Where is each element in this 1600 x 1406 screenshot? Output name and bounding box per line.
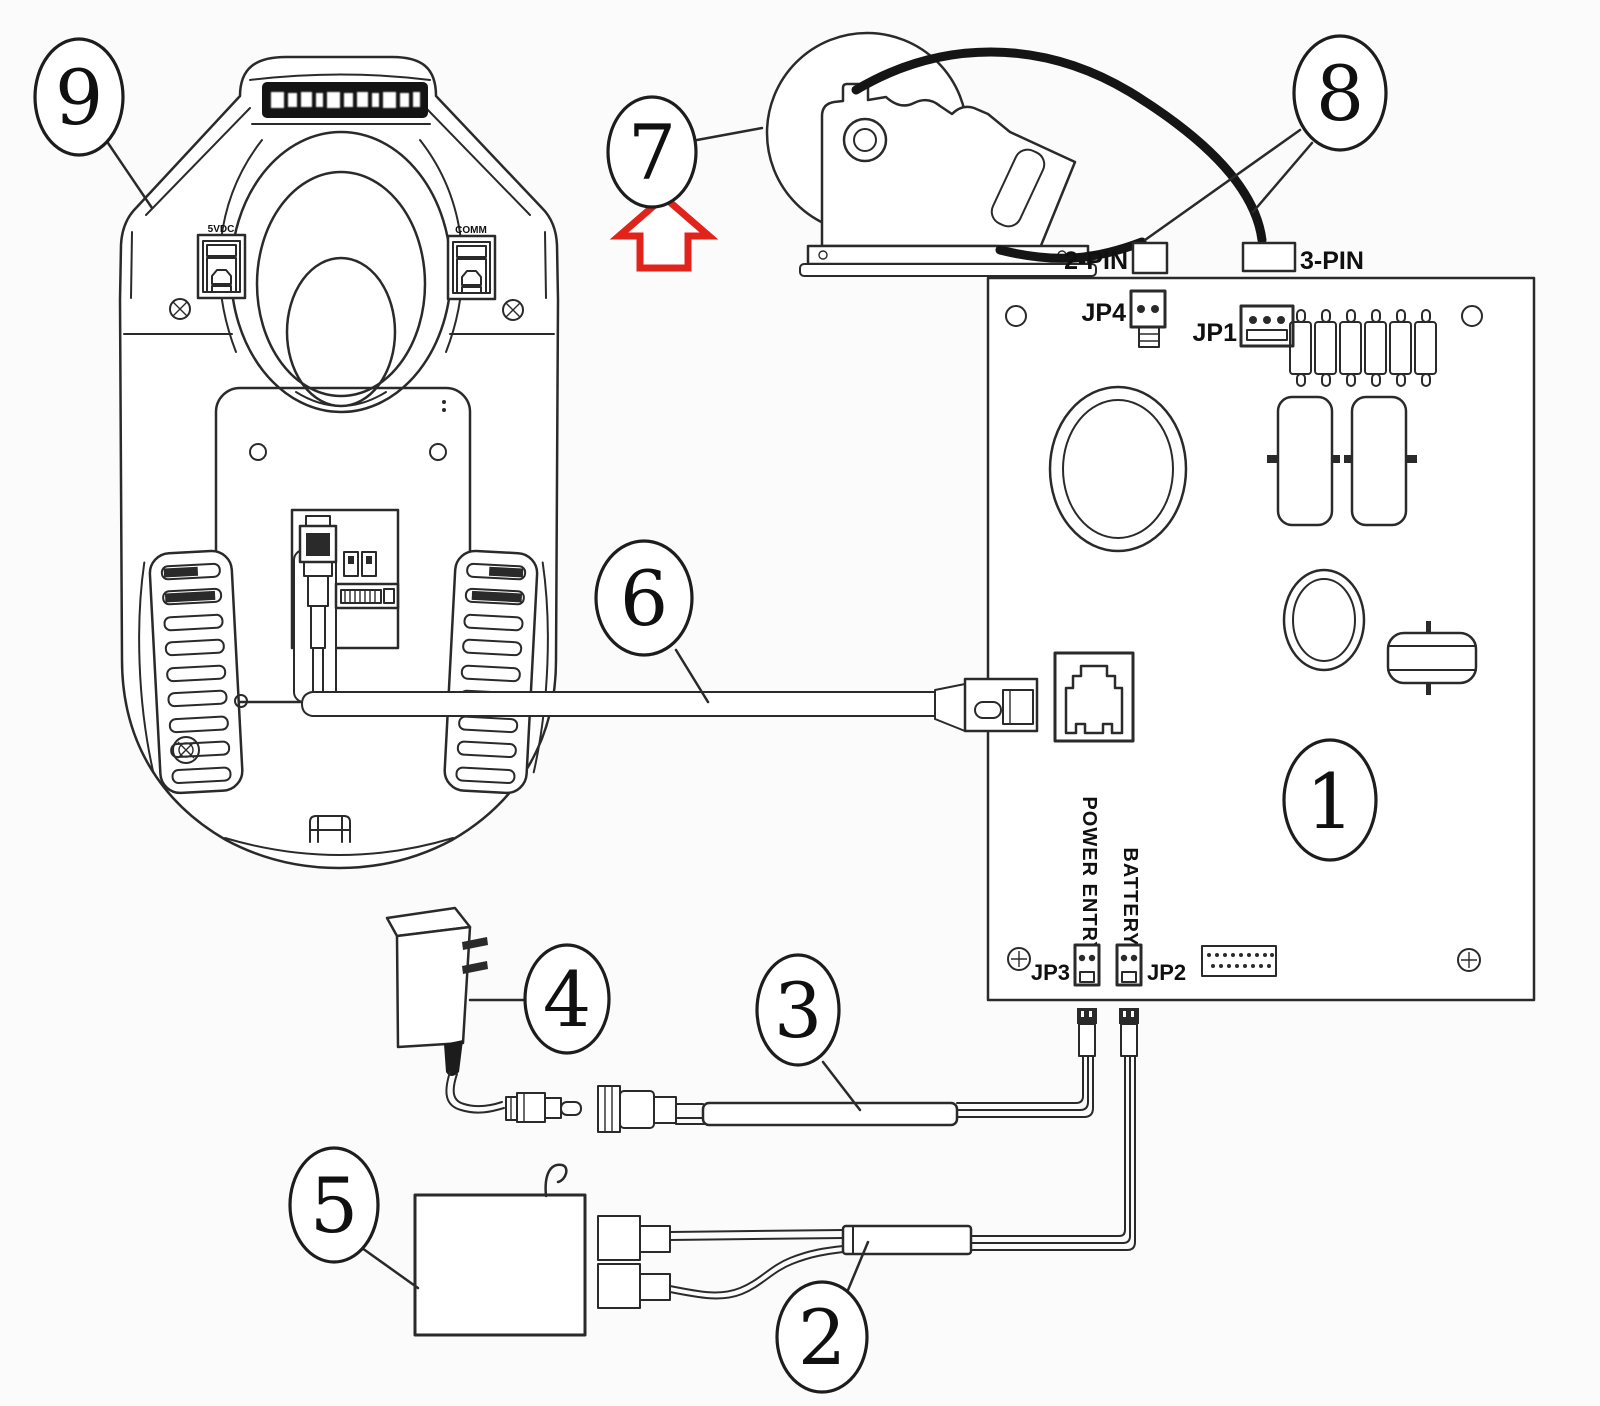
barrel-plug [506, 1093, 581, 1122]
jp2-label: JP2 [1147, 960, 1186, 985]
jp2-connector [1117, 945, 1141, 985]
cradle-drawing: 5VDC COMM [120, 57, 558, 868]
callout-3-number: 3 [774, 966, 822, 1055]
panel-mark [442, 408, 446, 412]
jp1-label: JP1 [1193, 319, 1238, 347]
battery-box [415, 1165, 585, 1335]
three-pin-connector [1243, 243, 1295, 271]
battery-wire-tab [546, 1165, 567, 1196]
cable3-sleeve [703, 1103, 957, 1125]
callout-9: 9 [35, 39, 152, 208]
battery-label: BATTERY [1119, 847, 1141, 946]
rj45-jack [1055, 653, 1133, 741]
two-pin-label: 2-PIN [1064, 247, 1128, 275]
power-port-label: 5VDC [208, 224, 235, 235]
circuit-board: JP4 JP1 [988, 278, 1534, 1000]
power-entry-cable [598, 1086, 957, 1132]
jp3-plug-wires [957, 1008, 1097, 1117]
comm-port-module [448, 236, 495, 299]
callout-5-number: 5 [310, 1161, 358, 1250]
power-port-module [198, 235, 245, 298]
plug-housing [294, 550, 336, 702]
adapter-front-face [397, 927, 470, 1047]
red-up-arrow [619, 197, 709, 268]
spade-sleeve-2 [640, 1274, 670, 1300]
adapter-cord-b [454, 1074, 502, 1106]
power-entry-label: POWER ENTRY [1078, 796, 1100, 955]
comm-port-label: COMM [455, 225, 487, 236]
three-pin-label: 3-PIN [1300, 247, 1364, 275]
callout-8-number: 8 [1316, 49, 1364, 138]
spade-terminal-1 [598, 1216, 640, 1260]
callout-4-number: 4 [543, 955, 591, 1044]
callout-7-number: 7 [628, 108, 676, 197]
callout-6: 6 [596, 541, 708, 702]
board-screw-br [1458, 949, 1480, 971]
callout-3: 3 [757, 955, 860, 1110]
jp3-label: JP3 [1031, 960, 1070, 985]
cable2-sleeve [843, 1226, 971, 1254]
battery-wire-straight [670, 1230, 843, 1240]
two-pin-connector [1133, 243, 1167, 273]
scan-module [767, 33, 1262, 276]
board-screw-bl [1008, 948, 1030, 970]
parts-diagram: 5VDC COMM [0, 0, 1600, 1406]
callout-8: 8 [1145, 36, 1386, 240]
callout-9-number: 9 [55, 53, 103, 142]
callout-4: 4 [470, 945, 609, 1053]
rj45-boot [935, 684, 965, 731]
parts-diagram-page: 5VDC COMM [0, 0, 1600, 1406]
callout-5: 5 [290, 1148, 418, 1288]
callout-1: 1 [1284, 740, 1376, 860]
jp3-connector [1075, 945, 1099, 985]
spade-terminal-2 [598, 1264, 640, 1308]
board-outline [988, 278, 1534, 1000]
adapter-strain-relief [444, 1040, 463, 1076]
callout-1-number: 1 [1306, 757, 1354, 846]
jp2-plug-wires [972, 1008, 1139, 1250]
rj45-plug [965, 679, 1037, 731]
callout-7: 7 [608, 97, 762, 207]
callout-2-number: 2 [798, 1293, 846, 1382]
jp1-connector [1241, 306, 1293, 346]
battery-cable [598, 1216, 971, 1308]
panel-mark [442, 400, 446, 404]
callout-6-number: 6 [620, 554, 668, 643]
spade-sleeve-1 [640, 1226, 670, 1252]
jp4-label: JP4 [1082, 299, 1127, 327]
